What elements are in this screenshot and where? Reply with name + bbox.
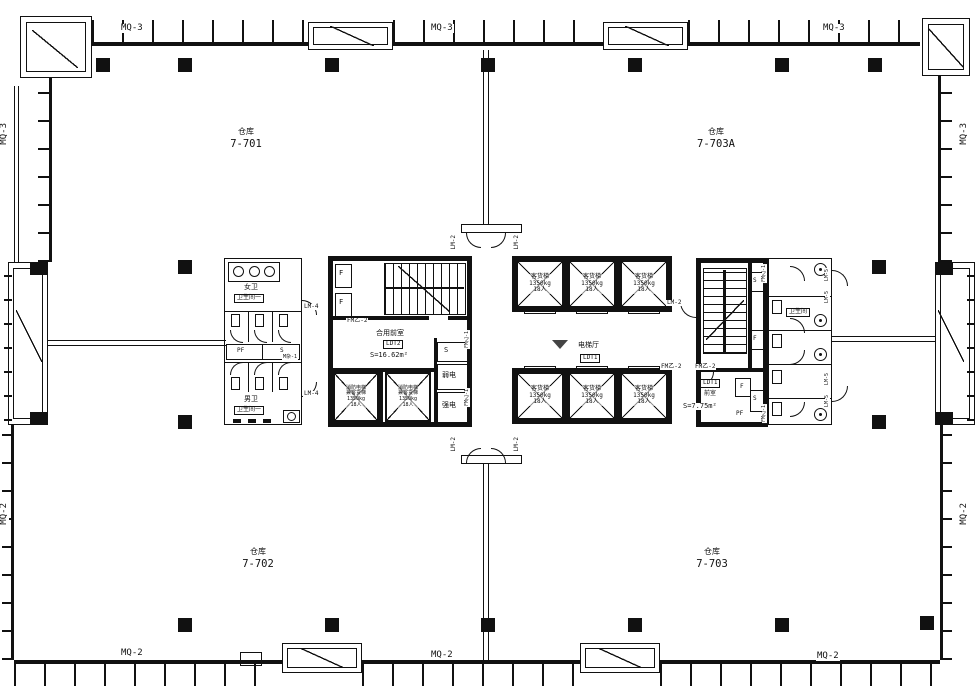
shaft-label: F [339,270,343,277]
shaft-label: S [753,396,757,402]
room-type: 仓库 [250,548,266,556]
passenger-elevator: 客货梯1350kg18人 [516,372,564,420]
core-wall [512,420,672,424]
sink [233,266,244,277]
door-tag: LM-5 [825,372,830,386]
window-diagonal [32,30,78,68]
stall-wall [768,364,832,365]
room-label: 女卫 [244,284,258,291]
room-type: 仓库 [238,128,254,136]
core-wall [696,258,766,263]
curtain-wall-left [38,78,52,262]
passenger-elevator-label: 18人 [529,399,551,406]
window-diagonal [598,648,642,668]
squat-wc [772,300,782,314]
room-type: 仓库 [708,128,724,136]
facade-line-left [14,86,19,262]
door-tag: FM乙-1 [465,330,470,349]
column [178,58,192,72]
column [96,58,110,72]
wc-dot [819,353,822,356]
column [325,618,339,632]
column [30,262,48,275]
shaft-divider [262,344,263,360]
room-tag: 卫生间一 [234,294,264,303]
curtain-wall-right [938,76,952,262]
room-number: 7-703 [696,559,728,570]
window-diagonal [625,26,669,46]
door-tag: LM-5 [825,290,830,304]
room-label: 男卫 [244,396,258,403]
sink [249,266,260,277]
core-wall [696,422,766,427]
passenger-elevator: 客货梯1350kg18人 [620,372,668,420]
urinal [263,419,271,423]
door-tag: LM-5 [825,268,830,282]
passenger-elevator: 客货梯1350kg18人 [516,260,564,308]
shaft-box [335,293,352,317]
door-tag: FM乙-1 [762,404,767,423]
squat-wc [772,370,782,384]
room-tag: LDT1 [700,379,720,388]
room-number: 7-701 [230,139,262,150]
corridor-wall [832,336,935,342]
door-tag: LM-2 [514,234,520,250]
door-tag: LM-2 [451,436,457,452]
entry-lintel [461,224,522,233]
urinal [233,419,241,423]
room-tag: LDT2 [383,340,403,349]
passenger-elevator-label: 18人 [633,399,655,406]
window-diagonal [938,310,964,362]
shaft-label: F [339,299,343,306]
window-diagonal [300,648,344,668]
stair-arrow [398,266,450,312]
column [920,616,934,630]
door-arc [466,233,481,248]
column [30,412,48,425]
stall-wall [224,311,302,312]
squat-wc [231,377,240,390]
corridor-wall [48,340,226,346]
room-name: 仓库7-701 [210,128,282,150]
shaft-label: F [740,384,744,390]
wall-notch [240,652,262,666]
shaft-label: 弱电 [442,372,456,379]
squat-wc [231,314,240,327]
column [325,58,339,72]
door-tag: LM-4 [303,391,319,397]
curtain-wall-bottom [362,660,580,686]
squat-wc [279,377,288,390]
column [178,618,192,632]
area-label: S=7.75m² [682,403,718,410]
curtain-wall-bottom [660,660,940,686]
shaft-label: S [444,347,448,354]
door-tag: FM乙-2 [346,318,368,324]
wc-dot [819,413,822,416]
shaft-label: 强电 [442,402,456,409]
column [481,618,495,632]
curtain-wall-top [688,20,920,46]
shaft-label: PF [237,348,244,354]
room-tag: 卫生间一 [234,406,264,415]
passenger-elevator-label: 18人 [581,287,603,294]
room-type: 仓库 [704,548,720,556]
stall-divider [248,312,249,342]
squat-wc [279,314,288,327]
curtain-wall-top [393,20,603,46]
room-label: 合用前室 [376,330,404,337]
room-name: 仓库7-703 [676,548,748,570]
window-diagonal [330,26,374,46]
column [628,58,642,72]
door-tag: LM-4 [303,304,319,310]
window-diagonal [16,310,42,362]
room-number: 7-703A [697,139,735,150]
column [481,58,495,72]
stall-divider [248,362,249,392]
room-tag: LDT1 [580,354,600,363]
core-wall [328,256,472,261]
column [628,618,642,632]
door-tag: FM乙-2 [694,364,716,370]
fire-elevator: 消防电梯兼客货梯1350kg18人 [385,372,431,422]
room-name: 仓库7-703A [680,128,752,150]
door-tag: LM-2 [514,436,520,452]
door-arc [466,448,481,463]
door-tag: LM-2 [666,300,682,306]
stall-wall [768,296,832,297]
room-name: 仓库7-702 [222,548,294,570]
door-tag: FM乙-1 [465,388,470,407]
fire-elevator-label: 18人 [346,403,366,409]
passenger-elevator-label: 18人 [633,287,655,294]
shaft-divider-wall [379,372,383,424]
wc-dot [819,319,822,322]
door-tag: FM乙-2 [660,364,682,370]
stall-wall [768,398,832,399]
door-tag: LM-5 [825,394,830,408]
door-tag: M杂-1 [282,355,298,360]
bay-mullions [967,266,975,421]
wall-tag: MQ-3 [430,24,454,33]
passenger-elevator-label: 18人 [529,287,551,294]
wall-tag: MQ-2 [816,652,840,661]
door-arc [491,448,506,463]
passenger-elevator: 客货梯1350kg18人 [568,260,616,308]
mop-sink-bowl [287,412,296,421]
floor-plan: 客货梯1350kg18人客货梯1350kg18人客货梯1350kg18人客货梯1… [0,0,979,692]
column [935,412,953,425]
squat-wc [255,314,264,327]
wall-tag: MQ-3 [822,24,846,33]
fire-elevator: 消防电梯兼客货梯1350kg18人 [333,372,379,422]
column [775,618,789,632]
wall-tag: MQ-2 [0,502,9,526]
wall-tag: MQ-2 [430,651,454,660]
core-wall [668,368,672,424]
sink [264,266,275,277]
door-arc [491,233,506,248]
column [868,58,882,72]
curtain-wall-right [940,425,952,660]
urinal [248,419,256,423]
shaft-label: S [753,278,757,284]
wall-tag: MQ-3 [120,24,144,33]
shaft-label: F [753,336,757,342]
column [872,260,886,274]
passenger-elevator-label: 18人 [581,399,603,406]
core-wall [448,316,467,320]
door-arc [832,386,848,402]
column [775,58,789,72]
window-diagonal [928,28,964,68]
column [178,415,192,429]
squat-wc [772,334,782,348]
hall-direction-marker [552,340,568,349]
room-number: 7-702 [242,559,274,570]
door-arc [832,270,848,286]
passenger-elevator: 客货梯1350kg18人 [568,372,616,420]
squat-wc [772,402,782,416]
stall-divider [272,362,273,392]
curtain-wall-left [2,425,14,660]
wall-tag: MQ-3 [0,122,9,146]
shaft-box [335,264,352,288]
wall-tag: MQ-2 [120,649,144,658]
door-tag: LM-2 [451,234,457,250]
squat-wc [255,377,264,390]
stall-divider [272,312,273,342]
stair-arrow [706,300,744,340]
room-tag: 卫生间 [786,308,810,317]
bay-mullions [4,266,12,421]
wall-tag: MQ-3 [960,122,969,146]
shaft-label: PF [736,411,743,417]
room-label: 前室 [704,391,716,397]
column [872,415,886,429]
wall-tag: MQ-2 [960,502,969,526]
wc-dot [819,268,822,271]
door-tag: FM乙-1 [762,264,767,283]
room-label: 电梯厅 [578,342,599,349]
demising-wall [483,50,489,224]
column [178,260,192,274]
fire-elevator-label: 18人 [398,403,418,409]
passenger-elevator: 客货梯1350kg18人 [620,260,668,308]
column [935,262,953,275]
area-label: S=16.62m² [370,352,408,359]
